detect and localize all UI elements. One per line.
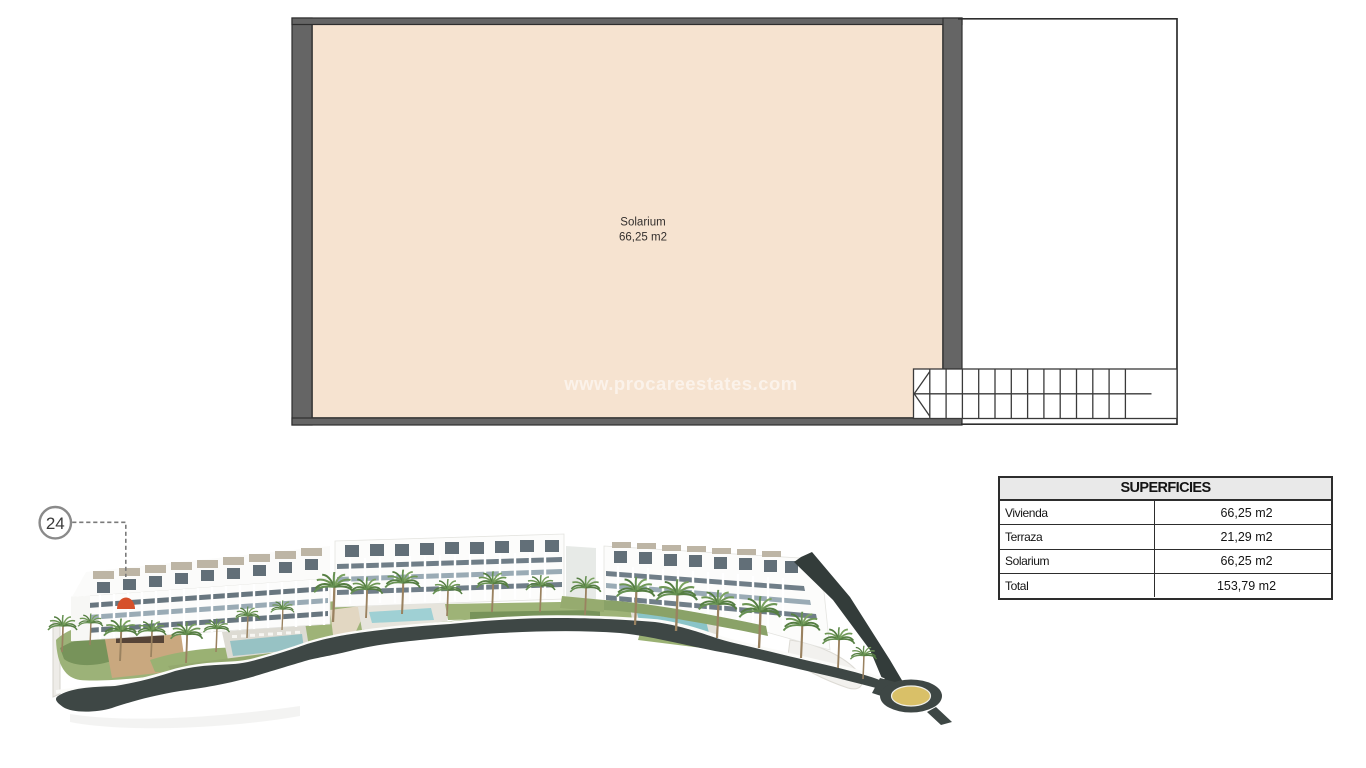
svg-text:Solarium: Solarium <box>620 217 665 229</box>
svg-text:www.procareestates.com: www.procareestates.com <box>563 373 797 394</box>
svg-text:66,25 m2: 66,25 m2 <box>619 232 667 244</box>
svg-text:24: 24 <box>46 514 65 533</box>
